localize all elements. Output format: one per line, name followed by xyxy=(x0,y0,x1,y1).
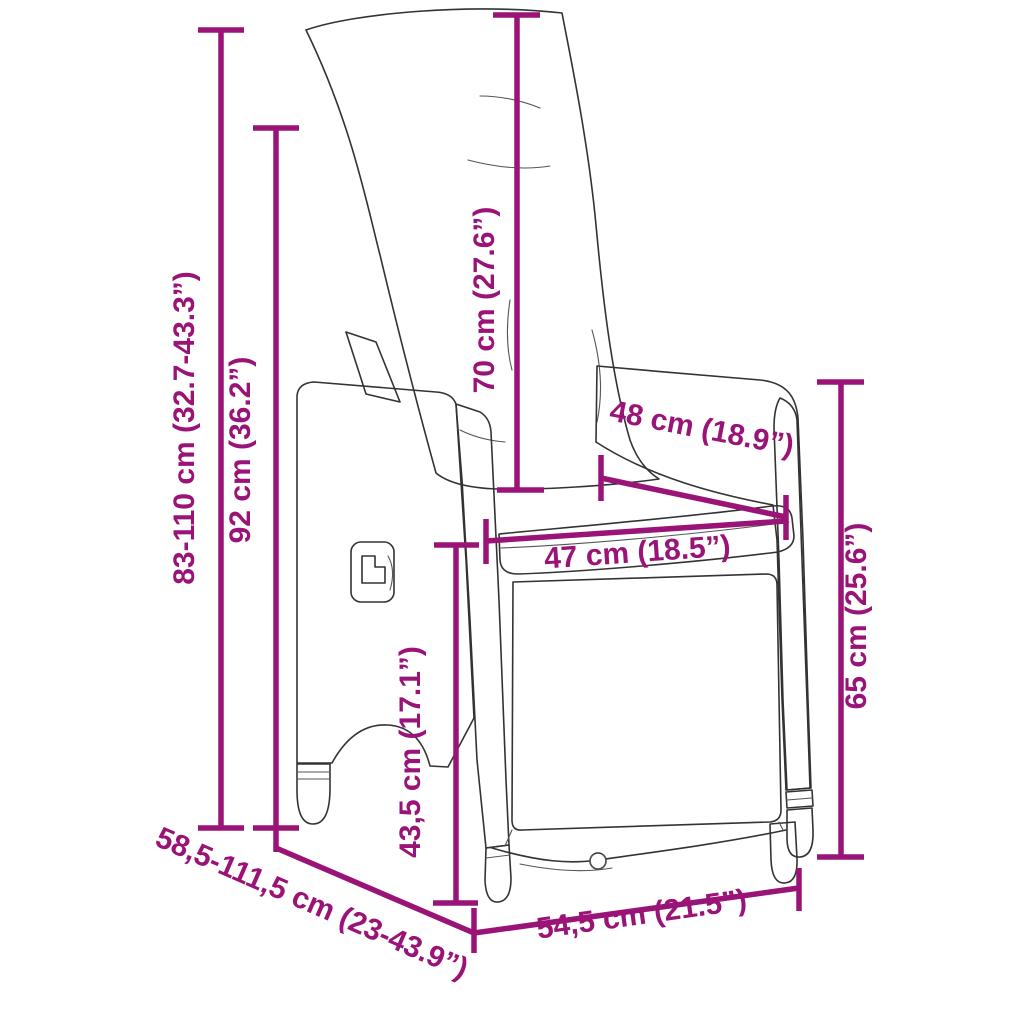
dim-front-vertical: 43,5 cm (17.1”) xyxy=(394,545,479,903)
backrest-frame-strip xyxy=(346,332,400,402)
release-knob xyxy=(590,853,606,869)
dim-label-right-vertical: 65 cm (25.6”) xyxy=(840,523,873,710)
dim-label-far-left-vertical: 83-110 cm (32.7-43.3”) xyxy=(168,271,201,585)
dim-bottom-width: 54,5 cm (21.5”) xyxy=(474,868,799,946)
footrest-panel xyxy=(492,574,786,871)
recline-handle xyxy=(351,542,394,602)
dim-armrest-diagonal: 48 cm (18.9”) xyxy=(601,395,797,540)
dim-label-bottom-width: 54,5 cm (21.5”) xyxy=(535,884,749,946)
dim-label-backrest-vertical: 70 cm (27.6”) xyxy=(468,207,501,394)
chair-line-drawing xyxy=(297,9,813,902)
dim-left-vertical: 92 cm (36.2”) xyxy=(224,128,299,852)
dim-seat-width: 47 cm (18.5”) xyxy=(486,519,786,575)
product-dimension-diagram: 83-110 cm (32.7-43.3”) 92 cm (36.2”) 70 … xyxy=(0,0,1024,1024)
dim-backrest-vertical: 70 cm (27.6”) xyxy=(468,15,544,490)
dim-right-vertical: 65 cm (25.6”) xyxy=(817,382,873,857)
dim-label-front-vertical: 43,5 cm (17.1”) xyxy=(394,646,427,858)
dim-label-left-vertical: 92 cm (36.2”) xyxy=(224,357,257,544)
